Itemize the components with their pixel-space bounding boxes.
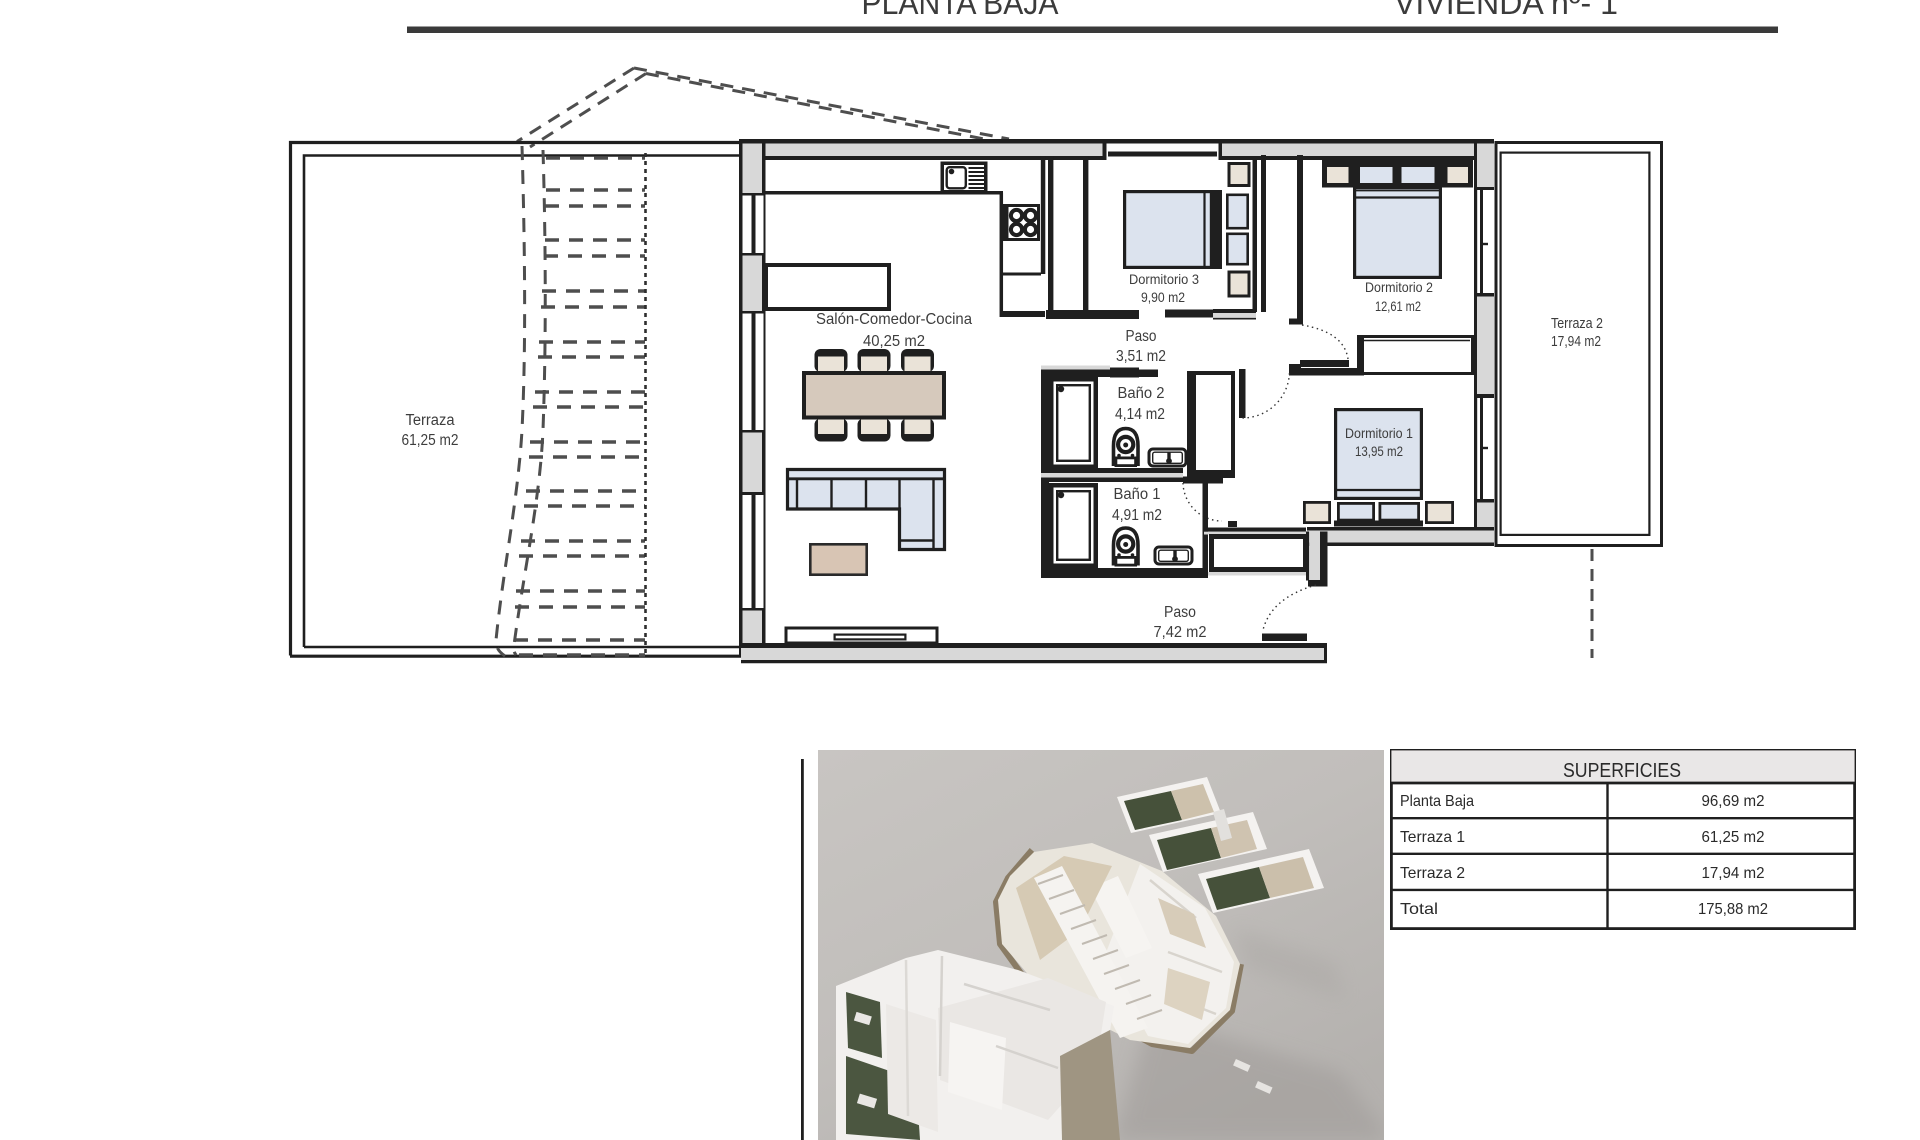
svg-text:PLANTA BAJA: PLANTA BAJA [862,0,1060,21]
svg-text:Total: Total [1400,901,1438,918]
svg-text:40,25 m2: 40,25 m2 [863,333,925,350]
svg-text:4,91 m2: 4,91 m2 [1112,507,1162,524]
svg-text:SUPERFICIES: SUPERFICIES [1563,760,1681,782]
svg-text:Terraza 1: Terraza 1 [1400,829,1465,846]
svg-text:175,88 m2: 175,88 m2 [1698,901,1768,918]
svg-text:Paso: Paso [1126,328,1157,345]
svg-text:96,69 m2: 96,69 m2 [1702,793,1765,810]
svg-text:Dormitorio 2: Dormitorio 2 [1365,279,1433,295]
svg-text:VIVIENDA nº- 1: VIVIENDA nº- 1 [1394,0,1618,21]
svg-text:4,14 m2: 4,14 m2 [1115,406,1165,423]
svg-text:17,94 m2: 17,94 m2 [1551,334,1601,350]
svg-text:Dormitorio 1: Dormitorio 1 [1345,425,1413,441]
svg-text:Terraza 2: Terraza 2 [1551,316,1603,332]
svg-text:61,25 m2: 61,25 m2 [1702,829,1765,846]
svg-text:61,25 m2: 61,25 m2 [402,432,459,449]
svg-text:12,61 m2: 12,61 m2 [1375,298,1421,314]
svg-text:Dormitorio 3: Dormitorio 3 [1129,271,1199,287]
svg-text:Terraza 2: Terraza 2 [1400,865,1465,882]
svg-text:3,51 m2: 3,51 m2 [1116,348,1166,365]
svg-text:Salón-Comedor-Cocina: Salón-Comedor-Cocina [816,311,972,328]
svg-text:17,94 m2: 17,94 m2 [1702,865,1765,882]
svg-text:7,42 m2: 7,42 m2 [1154,624,1207,641]
svg-text:Baño 2: Baño 2 [1118,385,1165,402]
svg-text:Baño 1: Baño 1 [1114,486,1161,503]
svg-text:Terraza: Terraza [406,412,455,429]
svg-text:Planta Baja: Planta Baja [1400,793,1474,810]
svg-text:9,90 m2: 9,90 m2 [1141,289,1185,305]
svg-text:13,95 m2: 13,95 m2 [1355,443,1403,459]
svg-text:Paso: Paso [1164,604,1196,621]
